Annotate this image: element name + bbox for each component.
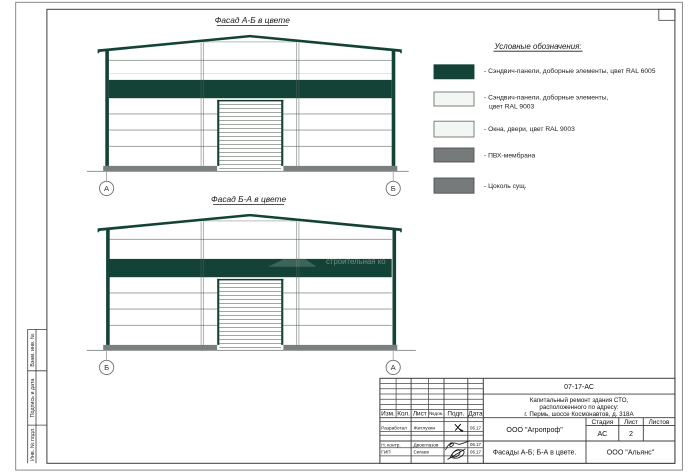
svg-text:06.17: 06.17	[470, 450, 482, 455]
svg-text:Лист: Лист	[413, 410, 427, 417]
svg-text:г. Пермь, шоссе Космонавтов, д: г. Пермь, шоссе Космонавтов, д. 318А	[524, 411, 634, 418]
svg-text:АС: АС	[597, 429, 607, 438]
svg-text:Сигаев: Сигаев	[414, 450, 430, 455]
svg-text:Стадия: Стадия	[592, 419, 614, 426]
svg-text:Двоеглазов: Двоеглазов	[414, 442, 439, 447]
svg-text:2: 2	[629, 429, 633, 438]
svg-text:- Сэндвич-панели, доборные эле: - Сэндвич-панели, доборные элементы, цве…	[484, 67, 656, 75]
svg-text:ООО "Альянс": ООО "Альянс"	[607, 449, 655, 457]
svg-text:Взам. инв. №: Взам. инв. №	[30, 333, 36, 367]
svg-text:Житлухин: Житлухин	[414, 425, 436, 430]
svg-text:Разработал: Разработал	[381, 425, 407, 430]
svg-text:- ПВХ-мембрана: - ПВХ-мембрана	[484, 151, 536, 159]
svg-text:Дата: Дата	[468, 410, 483, 417]
svg-text:ООО "Агропроф": ООО "Агропроф"	[506, 426, 563, 434]
svg-text:Фасад Б-А в цвете: Фасад Б-А в цвете	[211, 194, 286, 204]
svg-text:07-17-АС: 07-17-АС	[564, 384, 594, 391]
svg-text:строительная ко: строительная ко	[326, 257, 386, 266]
svg-text:Листов: Листов	[649, 419, 670, 426]
svg-text:Фасад А-Б в цвете: Фасад А-Б в цвете	[215, 15, 290, 25]
svg-text:цвет RAL 9003: цвет RAL 9003	[489, 104, 535, 111]
svg-text:Подпись и дата: Подпись и дата	[30, 379, 36, 418]
svg-text:Н. контр.: Н. контр.	[381, 442, 400, 447]
svg-text:Инв. № подл.: Инв. № подл.	[30, 427, 36, 461]
svg-text:06.17: 06.17	[470, 425, 482, 430]
svg-text:ГИП: ГИП	[381, 450, 390, 455]
svg-text:- Цоколь сущ.: - Цоколь сущ.	[484, 183, 527, 190]
svg-text:Условные обозначения:: Условные обозначения:	[493, 42, 581, 51]
svg-text:Кол.: Кол.	[397, 410, 410, 417]
svg-text:Фасады А-Б; Б-А в цвете.: Фасады А-Б; Б-А в цвете.	[493, 449, 577, 457]
svg-text:Подп.: Подп.	[447, 410, 464, 417]
svg-text:Б: Б	[391, 184, 396, 193]
svg-text:Лист: Лист	[624, 419, 638, 426]
svg-text:- Сэндвич-панели, доборные эле: - Сэндвич-панели, доборные элементы,	[484, 94, 609, 102]
svg-text:Изм.: Изм.	[381, 410, 395, 417]
svg-text:Б: Б	[104, 363, 109, 372]
svg-text:№док.: №док.	[429, 411, 443, 417]
svg-text:- Окна, двери, цвет RAL 9003: - Окна, двери, цвет RAL 9003	[484, 126, 575, 133]
svg-text:06.17: 06.17	[470, 442, 482, 447]
